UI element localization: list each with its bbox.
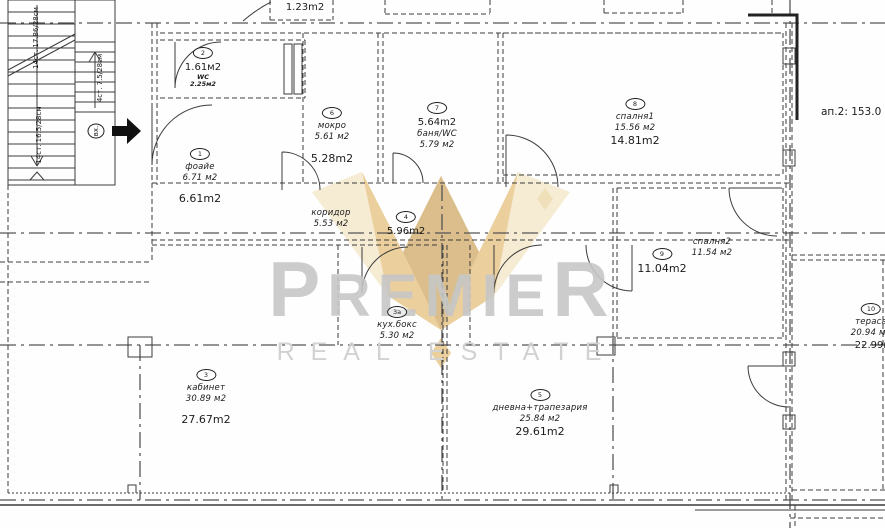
room-name: спалня2 xyxy=(692,237,732,248)
room-area-built: 11.04m2 xyxy=(637,262,686,276)
room-number-badge: 4 xyxy=(396,211,416,223)
room-label-kabinet: 3 кабинет 30.89 м2 27.67m2 xyxy=(181,362,230,427)
room-area: 11.54 м2 xyxy=(692,248,732,259)
room-name: спалня1 xyxy=(610,112,659,123)
stair-flight-label: 4ст. 7.5/28см xyxy=(96,54,104,102)
room-label-mokro: 6 мокро 5.61 м2 5.28m2 xyxy=(311,100,353,166)
apartment-total-label: ап.2: 153.0 xyxy=(821,106,881,118)
room-area-built: 29.61m2 xyxy=(492,425,587,439)
room-label-foyer: 1 фоайе 6.71 м2 6.61m2 xyxy=(179,141,221,206)
room-label-bedroom1: 8 спалня1 15.56 м2 14.81m2 xyxy=(610,91,659,148)
upper-floor-fragments xyxy=(270,0,772,20)
room-label-hall: 4 5.96m2 xyxy=(387,204,425,238)
entrance-label: вх. xyxy=(92,126,100,137)
watermark-brand: PREMIER xyxy=(268,244,615,335)
room-area: 6.71 м2 xyxy=(179,173,221,184)
room-number-badge: 9 xyxy=(652,248,672,260)
room-area: 1.61м2 xyxy=(185,61,221,74)
room-label-kitchen: 3а кух.бокс 5.30 м2 xyxy=(377,299,417,342)
room-area: 5.30 м2 xyxy=(377,331,417,342)
room-name: кабинет xyxy=(181,383,230,394)
room-number-badge: 6 xyxy=(322,107,342,119)
room-label-corridor: коридор 5.53 м2 xyxy=(311,208,350,230)
room-name: дневна+трапезария xyxy=(492,403,587,414)
room-area: 5.61 м2 xyxy=(311,132,353,143)
room-label-bedroom2-name: спалня2 11.54 м2 xyxy=(692,237,732,259)
room-area: 5.53 м2 xyxy=(311,219,350,230)
floor-plan: PREMIER REAL ESTATE xyxy=(0,0,885,528)
room-number-badge: 8 xyxy=(625,98,645,110)
room-label-bedroom2-num: 9 11.04m2 xyxy=(637,241,686,276)
room-subarea: 2.25м2 xyxy=(185,81,221,88)
room-area: 20.94 м2 xyxy=(851,328,885,339)
room-area: 5.79 м2 xyxy=(417,140,457,151)
watermark-letter-r: R xyxy=(552,245,615,333)
room-name: коридор xyxy=(311,208,350,219)
room-number-badge: 10 xyxy=(861,303,881,315)
room-name: мокро xyxy=(311,121,353,132)
room-number-badge: 1 xyxy=(190,148,210,160)
room-area-built: 27.67m2 xyxy=(181,413,230,427)
room-name: тераса xyxy=(851,317,885,328)
room-label-wc: 2 1.61м2 WC 2.25м2 xyxy=(185,40,221,88)
upper-door-arc xyxy=(243,2,271,21)
room-number-badge: 3а xyxy=(387,306,407,318)
room-name: баня/WC xyxy=(417,129,457,140)
room-area: 15.56 м2 xyxy=(610,123,659,134)
watermark-mid: REMIE xyxy=(327,262,552,329)
room-number-badge: 2 xyxy=(193,47,213,59)
watermark-tagline: REAL ESTATE xyxy=(277,338,618,367)
room-label-upper: 1.23m2 xyxy=(286,1,324,14)
bottom-walls xyxy=(0,493,885,510)
room-area-built: 5.28m2 xyxy=(311,152,353,166)
watermark-letter-p: P xyxy=(268,245,327,333)
room-number-badge: 5 xyxy=(530,389,550,401)
room-area-built: 6.61m2 xyxy=(179,192,221,206)
room-area: 25.84 м2 xyxy=(492,414,587,425)
room-number-badge: 3 xyxy=(196,369,216,381)
stair-flight-label: 14ст. 16.5/28см xyxy=(35,106,43,163)
room-area-built: 5.96m2 xyxy=(387,225,425,238)
room-name: фоайе xyxy=(179,162,221,173)
room-name: кух.бокс xyxy=(377,320,417,331)
room-area-built: 5.64m2 xyxy=(417,116,457,129)
room-area: 30.89 м2 xyxy=(181,394,230,405)
room-area-built: 14.81m2 xyxy=(610,134,659,148)
room-label-bath: 7 5.64m2 баня/WC 5.79 м2 xyxy=(417,95,457,151)
stair-flight-label: 14ст. 17.86/28см xyxy=(32,7,40,69)
room-label-terrace: 10 тераса 20.94 м2 xyxy=(851,296,885,339)
room-number-badge: 7 xyxy=(427,102,447,114)
room-label-living: 5 дневна+трапезария 25.84 м2 29.61m2 xyxy=(492,382,587,439)
room-label-terrace-built: 22.99м2 xyxy=(855,339,885,352)
